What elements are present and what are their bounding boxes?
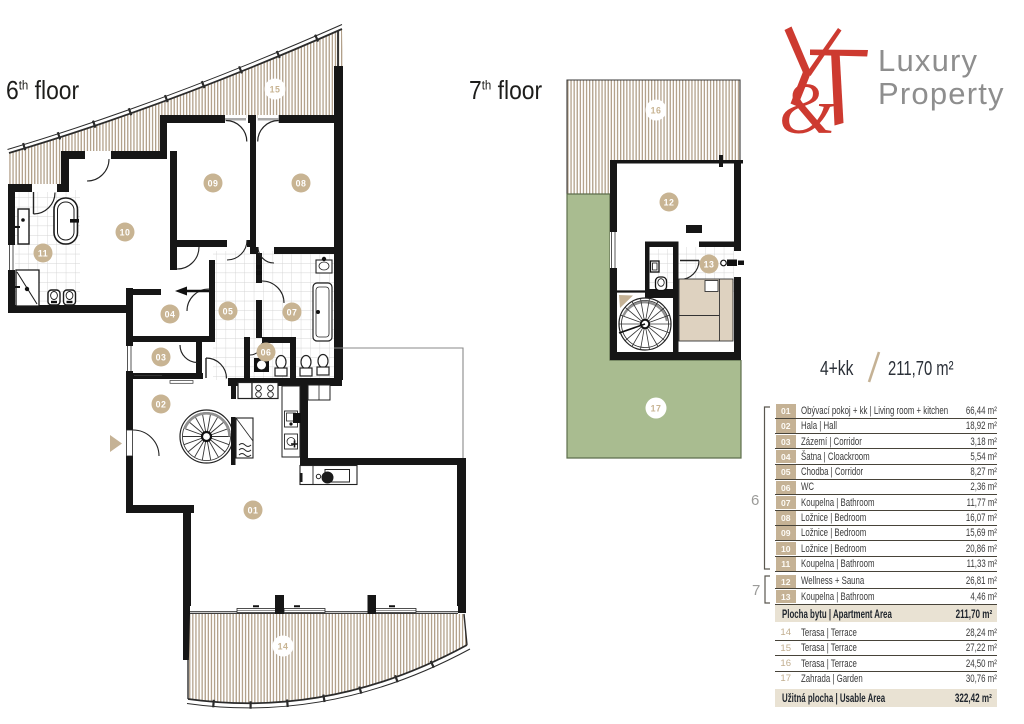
svg-text:11: 11 bbox=[38, 248, 48, 258]
svg-text:03: 03 bbox=[156, 352, 167, 362]
svg-text:08: 08 bbox=[296, 178, 307, 188]
svg-text:6: 6 bbox=[751, 492, 759, 509]
svg-text:01: 01 bbox=[248, 505, 259, 515]
svg-text:13: 13 bbox=[704, 259, 715, 269]
svg-text:16: 16 bbox=[651, 105, 662, 115]
svg-text:15: 15 bbox=[270, 84, 281, 94]
svg-text:7: 7 bbox=[752, 582, 760, 599]
svg-text:02: 02 bbox=[156, 399, 167, 409]
svg-text:&: & bbox=[779, 68, 836, 149]
svg-text:10: 10 bbox=[120, 227, 131, 237]
svg-text:05: 05 bbox=[223, 306, 234, 316]
svg-text:09: 09 bbox=[208, 178, 219, 188]
svg-text:14: 14 bbox=[278, 641, 289, 651]
svg-text:06: 06 bbox=[261, 347, 272, 357]
svg-text:12: 12 bbox=[664, 197, 675, 207]
svg-text:07: 07 bbox=[287, 307, 298, 317]
svg-text:04: 04 bbox=[165, 309, 176, 319]
svg-text:17: 17 bbox=[651, 403, 662, 413]
